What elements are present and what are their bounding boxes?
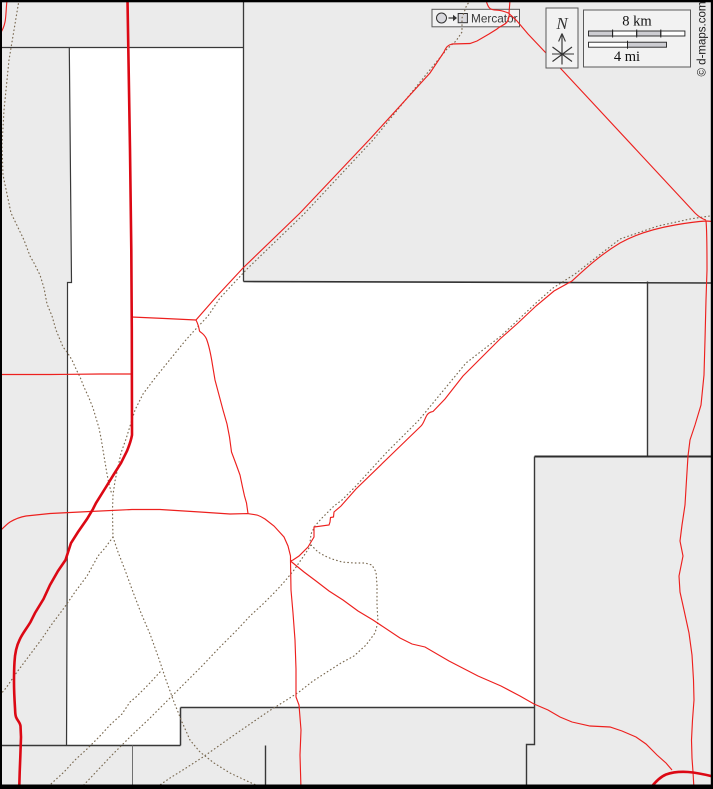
svg-text:Mercator: Mercator <box>471 11 518 25</box>
svg-text:© d-maps.com: © d-maps.com <box>697 2 709 77</box>
svg-text:4 mi: 4 mi <box>614 49 640 65</box>
svg-text:8 km: 8 km <box>622 14 652 30</box>
svg-text:N: N <box>555 14 569 33</box>
